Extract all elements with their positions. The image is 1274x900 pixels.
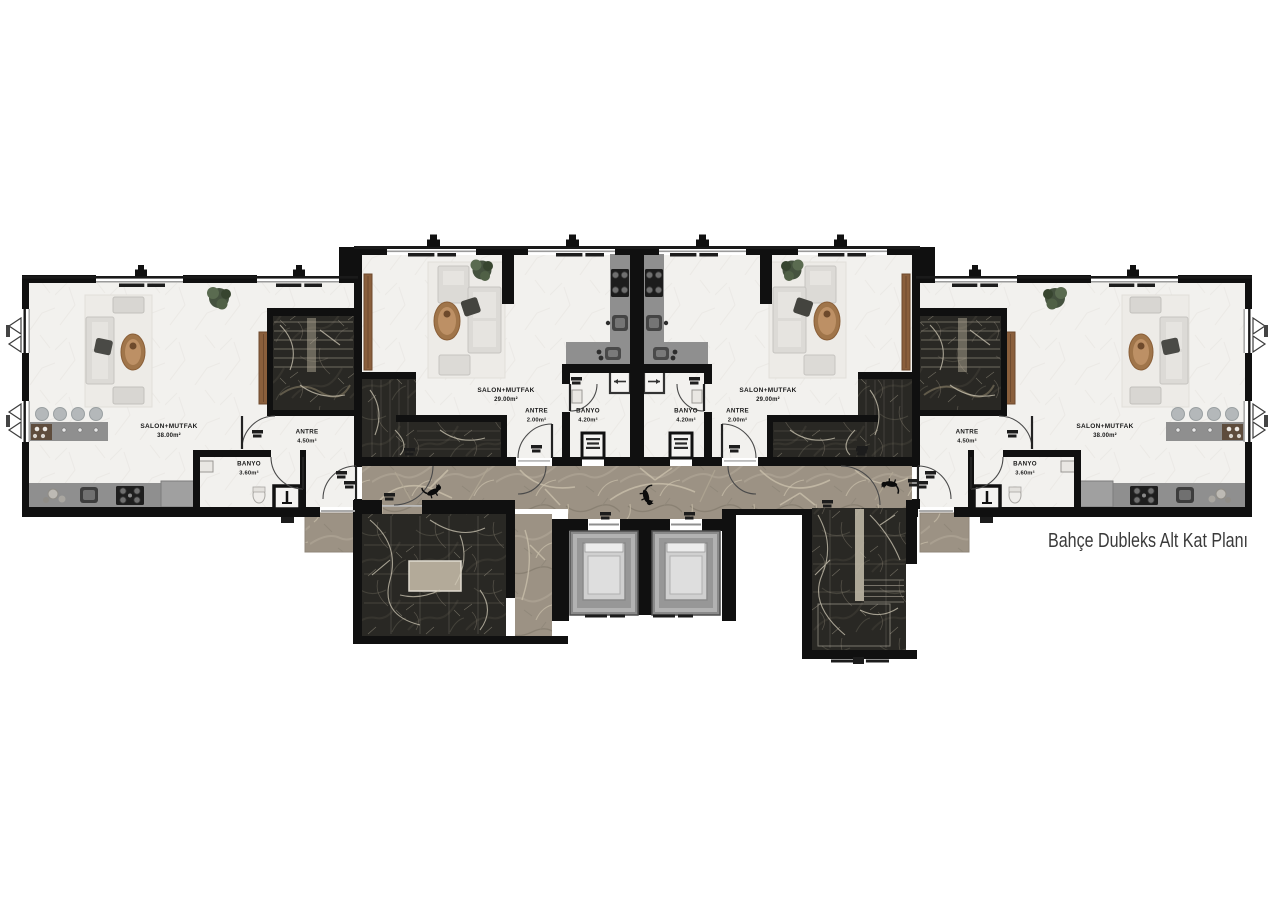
svg-text:4.50m²: 4.50m² [957, 438, 977, 445]
svg-text:38.00m²: 38.00m² [1093, 432, 1117, 439]
svg-text:ANTRE: ANTRE [726, 408, 749, 415]
svg-text:BANYO: BANYO [576, 408, 600, 415]
svg-text:SALON+MUTFAK: SALON+MUTFAK [1076, 423, 1133, 430]
svg-text:2.00m²: 2.00m² [527, 417, 547, 424]
svg-text:3.60m²: 3.60m² [1015, 470, 1035, 477]
svg-text:4.50m²: 4.50m² [297, 438, 317, 445]
svg-text:4.20m²: 4.20m² [578, 417, 598, 424]
svg-text:BANYO: BANYO [237, 461, 261, 468]
svg-text:BANYO: BANYO [674, 408, 698, 415]
svg-text:29.00m²: 29.00m² [494, 396, 518, 403]
svg-text:SALON+MUTFAK: SALON+MUTFAK [477, 387, 534, 394]
svg-text:ANTRE: ANTRE [956, 429, 979, 436]
svg-text:SALON+MUTFAK: SALON+MUTFAK [739, 387, 796, 394]
svg-text:38.00m²: 38.00m² [157, 432, 181, 439]
svg-text:BANYO: BANYO [1013, 461, 1037, 468]
svg-text:ANTRE: ANTRE [525, 408, 548, 415]
svg-text:2.00m²: 2.00m² [728, 417, 748, 424]
svg-text:SALON+MUTFAK: SALON+MUTFAK [140, 423, 197, 430]
svg-text:ANTRE: ANTRE [296, 429, 319, 436]
svg-text:29.00m²: 29.00m² [756, 396, 780, 403]
svg-text:4.20m²: 4.20m² [676, 417, 696, 424]
svg-text:Bahçe Dubleks Alt Kat Planı: Bahçe Dubleks Alt Kat Planı [1048, 530, 1248, 552]
svg-text:3.60m²: 3.60m² [239, 470, 259, 477]
